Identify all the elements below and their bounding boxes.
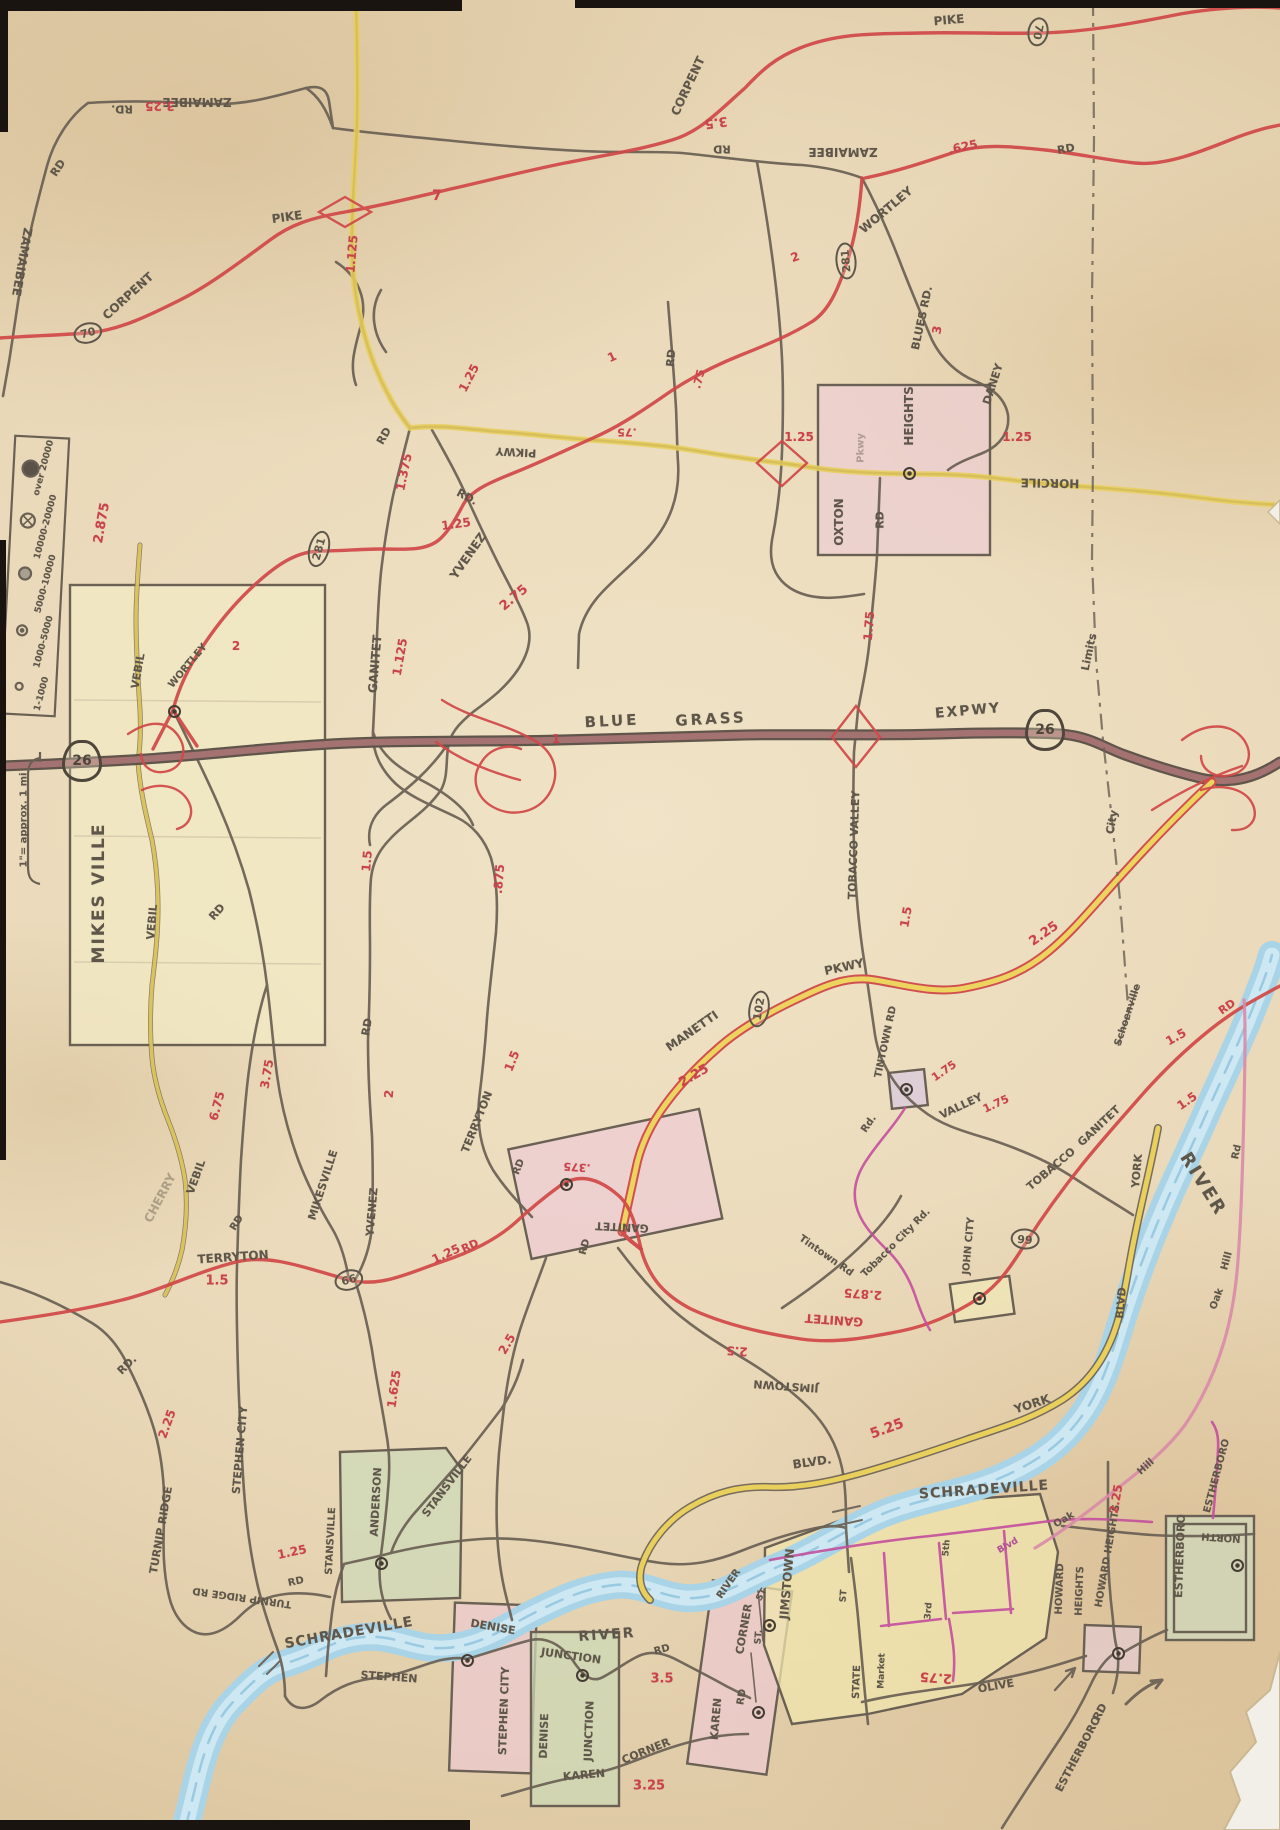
map-label-3-5: 3.5 [650,1672,673,1687]
town-dot-karen-corner-north [763,1619,776,1632]
scan-edge-top-right [575,0,1280,8]
map-label-1-25: 1.25 [1002,430,1032,444]
map-label-blue: BLUE [584,711,640,732]
map-label-denise: DENISE [537,1713,552,1759]
map-label-2-75: 2.75 [919,1668,952,1685]
town-dot-stephen-city [461,1654,474,1667]
map-label-2: 2 [382,1089,397,1099]
scan-edge-bottom [0,1820,470,1830]
map-label-heights: HEIGHTS [1074,1566,1087,1616]
map-label-rd: RD. [111,103,133,116]
town-dot-wortley [168,705,181,718]
map-label-rd: RD [874,511,887,529]
map-label-75: .75 [617,426,637,439]
map-label-heights: HEIGHTS [902,386,916,445]
map-label-zamaibee: ZAMAIBEE [808,145,877,159]
map-label-875: .875 [491,864,508,895]
scale-bracket [28,752,40,884]
map-label-2: 2 [232,639,240,653]
scan-edge-left-upper [0,0,8,132]
map-label-rd: RD [664,349,678,368]
torn-corner [1224,1652,1280,1830]
city-area-howard-heights [1083,1625,1141,1673]
map-label-mikes-ville: MIKES VILLE [89,823,109,964]
map-label-3-25: 3.25 [633,1779,665,1794]
road-network-svg [0,0,1280,1830]
town-dot-tintown [900,1083,913,1096]
map-label-375: .375 [563,1160,591,1175]
scan-edge-left-lower [0,540,6,1160]
map-label-2-5: 2.5 [726,1343,748,1358]
map-label-horcile: HORCILE [1021,475,1080,490]
map-label-2-875: 2.875 [844,1286,883,1303]
map-label-pikwy: PIKWY [495,444,536,459]
city-area-ganitet [508,1109,722,1259]
town-dot-john-city [973,1292,986,1305]
map-label-3-25: 3.25 [145,99,175,113]
town-dot-denise-junction [576,1669,589,1682]
map-label-pike: PIKE [933,12,965,29]
town-dot-oxton-heights [903,467,916,480]
route-shield-26: 26 [62,740,102,782]
map-label-1: 1 [552,732,560,746]
map-label-market: Market [876,1653,887,1689]
map-label-1-75: 1.75 [861,611,878,642]
map-label-rd: RD [713,143,731,156]
map-label-1-5: 1.5 [359,850,375,872]
map-label-blvd: BLVD [1113,1287,1129,1320]
map-label-grass: GRASS [675,708,747,730]
map-label-7: 7 [432,188,442,204]
map-label-junction: JUNCTION [581,1701,596,1762]
map-label-ganitet: GANITET [595,1219,649,1235]
hand-drawn-map: ZAMAIBEE3.25RD.ZAMAIBEERDPIKECORPENTPIKE… [0,0,1280,1830]
town-dot-estherboro [1231,1559,1244,1572]
map-label-howard: HOWARD [1054,1563,1067,1615]
map-label-5th: 5th [941,1539,952,1557]
town-dot-anderson [375,1557,388,1570]
map-label-1-25: 1.25 [784,430,814,444]
map-label-3rd: 3rd [923,1602,934,1620]
town-dot-howard-heights [1112,1647,1125,1660]
map-label-1-approx-1-mi: 1"= approx. 1 mi [19,773,30,868]
map-label-state: STATE [851,1665,863,1699]
town-dot-karen-corner-south [752,1706,765,1719]
city-area-anderson [340,1448,462,1602]
map-label-st: ST. [753,1629,764,1645]
map-label-pkwy: Pkwy [856,433,867,463]
map-label-1-5: 1.5 [205,1274,228,1289]
map-label-3-5: 3.5 [704,113,729,131]
map-label-oxton: OXTON [832,498,846,545]
town-dot-ganitet [560,1178,573,1191]
scan-edge-top-left [0,0,462,11]
route-shield-26: 26 [1025,709,1065,751]
map-label-st: ST [838,1589,849,1602]
